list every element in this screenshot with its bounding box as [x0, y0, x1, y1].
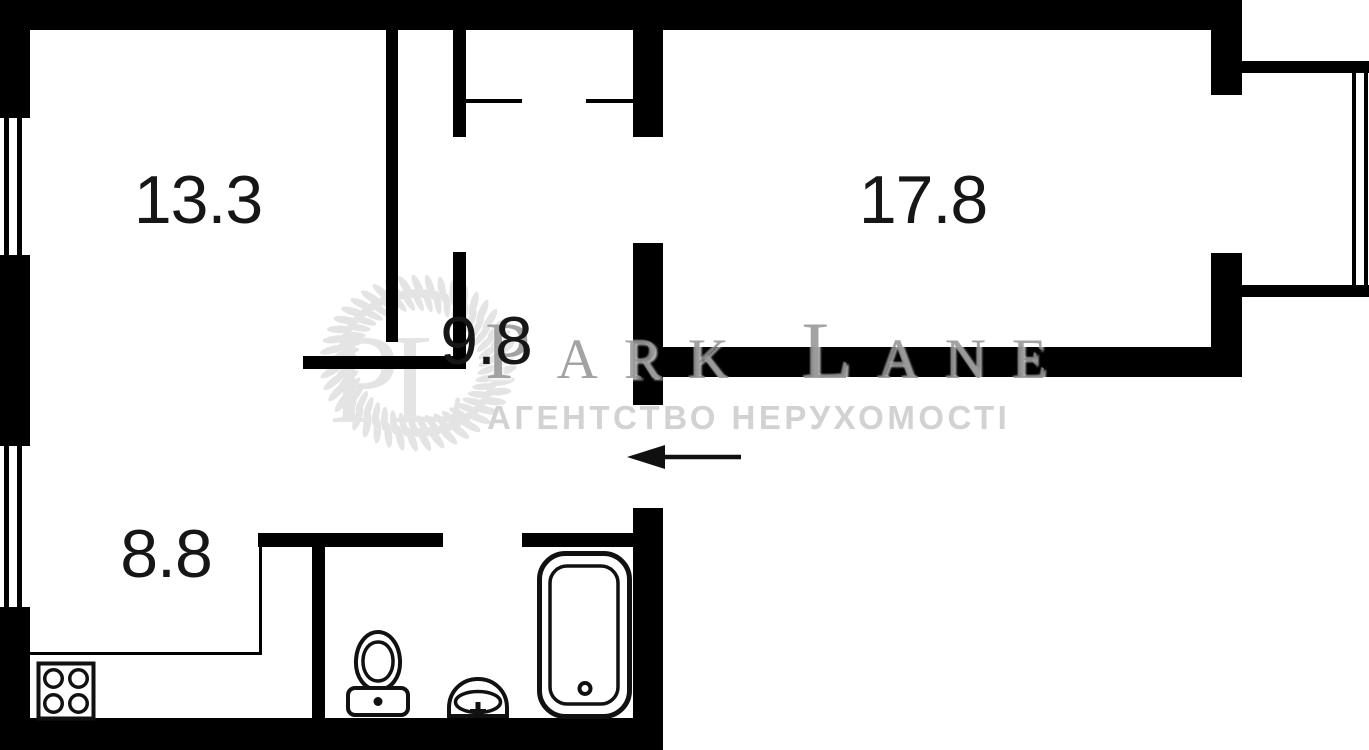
room-area-label: 8.8 — [120, 515, 212, 593]
room-area-label: 17.8 — [859, 161, 987, 239]
room-area-label: 9.8 — [440, 302, 532, 380]
room-area-label: 13.3 — [134, 161, 262, 239]
label-layer: 13.3 17.8 9.8 8.8 — [0, 0, 1369, 750]
floor-plan: PL — [0, 0, 1369, 750]
